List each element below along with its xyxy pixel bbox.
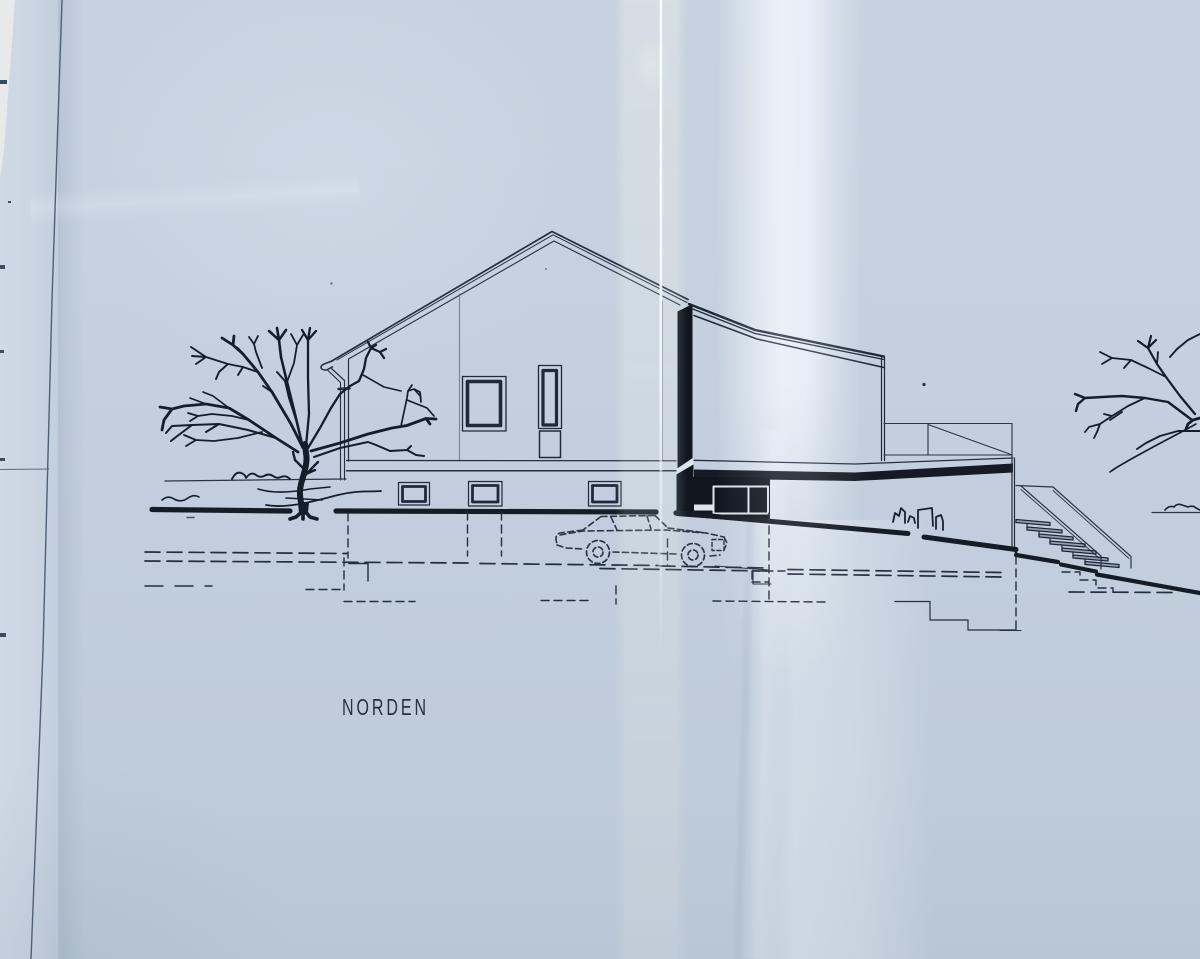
svg-text:NORDEN: NORDEN <box>342 694 429 720</box>
